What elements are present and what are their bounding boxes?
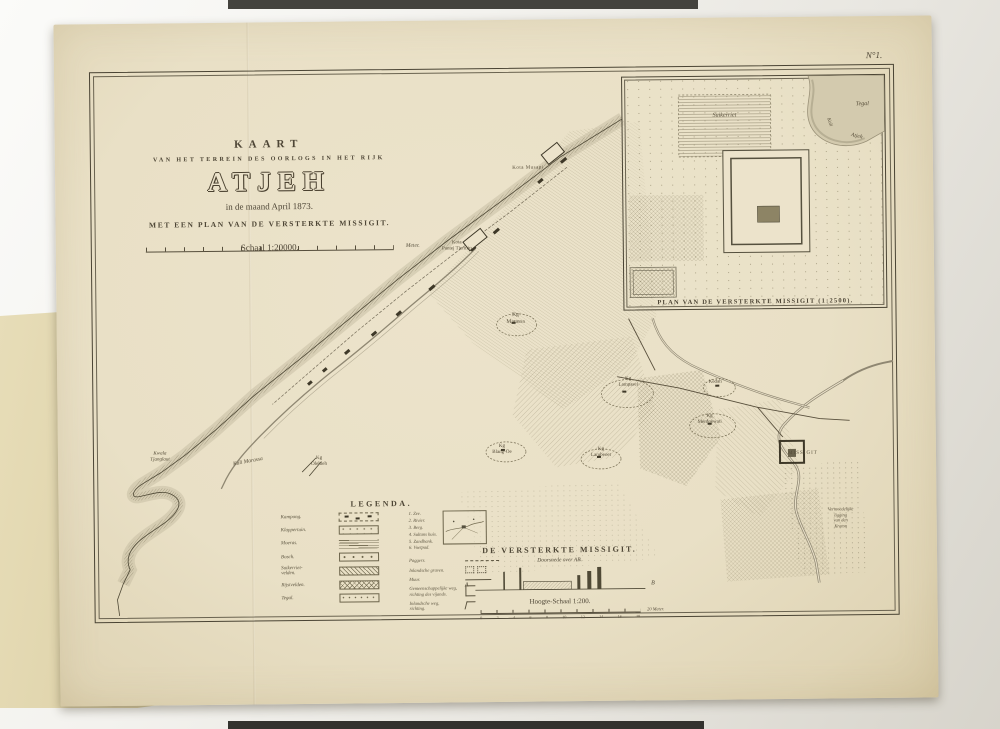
swatch-tegal [339,594,379,603]
inset-detail-box [630,267,676,297]
swatch-kampong [339,512,379,521]
swatch-klappertuin [339,526,379,535]
label-kg-lampasei: Kg Lampasei [603,376,653,389]
swatch-suikerriet [339,566,379,575]
photo-table-edge-bottom [228,721,704,729]
title-block: KAART VAN HET TERREIN DES OORLOGS IN HET… [143,137,396,254]
profile-subtitle: Doorsnede over AB. [457,556,662,564]
grid-fields-bottom-right [720,489,829,582]
label-kraton-note: Vermoedelijke ligging van den Kraton [811,506,871,529]
inset-drawing [622,75,886,310]
map-plan-line: MET EEN PLAN VAN DE VERSTERKTE MISSIGIT. [144,218,396,230]
legend-title: LEGENDA. [350,498,495,509]
inset-label-sugarcane: Suikerriet [680,112,768,120]
label-kedah: Kedah [695,379,735,386]
label-kg-merdoewati: Kg Merdoewati [682,413,738,426]
photo-of-antique-map: { "corner_label": "N°1.", "title_block":… [0,0,1000,729]
swatch-bosch [339,552,379,561]
label-kota-pantej-tjermin: Kota Pantej Tjermin [426,240,488,253]
label-kg-marassa: Kg Marassa [490,312,540,326]
profile-scale-unit: 20 Meter. [647,606,664,611]
legend-overview-thumbnail [443,510,487,544]
label-missigit: MISSIGIT [776,451,830,458]
label-kwala-tjanglaut: Kwala Tjanglaut [132,451,188,464]
map-kicker: KAART [143,137,395,152]
label-kota-musapi: Kota Musapi [497,165,559,172]
map-date-line: in de maand April 1873. [143,200,395,213]
profile-title: DE VERSTERKTE MISSIGIT. [457,544,662,555]
swatch-moeras [339,539,379,548]
inset-plan: Suikerriet Tegal Kali Atjeh PLAN VAN DE … [621,74,887,311]
map-sheet: N°1. [53,15,938,706]
label-kg-lambeoet: Kg Lambeoet [576,447,626,460]
profile-section: DE VERSTERKTE MISSIGIT. Doorsnede over A… [457,544,663,620]
photo-table-edge-top [228,0,698,9]
label-kg-blang-oe: Kg Blang-Oe [476,444,528,457]
profile-drawing: A B [465,564,655,596]
map-title: ATJEH [143,165,395,199]
scale-unit: Meter. [406,243,420,249]
swatch-rijstvelden [339,580,379,589]
missigit-plan-outer [723,150,810,253]
label-kg-olehleh: Kg Olehleh [296,456,342,469]
legend-numbered-list: 1. Zee. 2. Rivier. 3. Berg. 4. Sultans h… [409,511,438,553]
inset-label-tegal: Tegal [844,101,880,109]
profile-scale-label: Hoogte-Schaal 1:200. [457,596,662,606]
map-subkicker: VAN HET TERREIN DES OORLOGS IN HET RIJK [143,155,395,164]
inset-hatch-area [629,195,704,262]
sugarcane-field [678,94,771,157]
